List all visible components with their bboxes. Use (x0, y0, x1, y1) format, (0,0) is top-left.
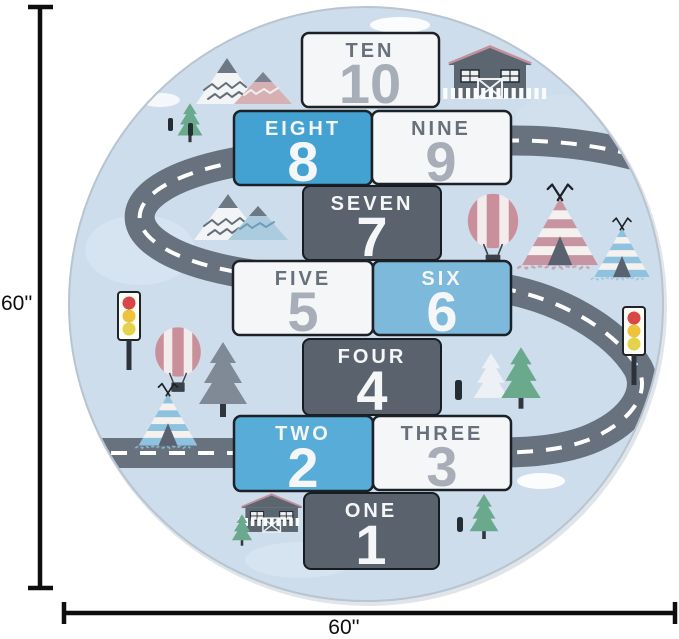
hopscotch-square-nine: NINE 9 (372, 111, 511, 193)
rug-diagram: TEN 10 EIGHT 8 NINE 9 SEVEN 7 FIVE 5 SIX… (0, 0, 679, 639)
square-number: 7 (356, 205, 387, 268)
height-label: 60'' (1, 292, 32, 315)
width-dimension: 60'' (64, 602, 675, 639)
square-number: 9 (425, 130, 456, 193)
height-dimension: 60'' (1, 7, 53, 588)
square-number: 2 (287, 436, 318, 499)
hopscotch-square-four: FOUR 4 (303, 339, 441, 422)
hopscotch-square-two: TWO 2 (234, 416, 373, 499)
hopscotch-square-six: SIX 6 (373, 261, 511, 343)
square-number: 8 (287, 130, 318, 193)
product-image: TEN 10 EIGHT 8 NINE 9 SEVEN 7 FIVE 5 SIX… (0, 0, 679, 639)
hopscotch-square-one: ONE 1 (304, 493, 439, 576)
square-number: 1 (355, 513, 386, 576)
hopscotch-square-three: THREE 3 (373, 416, 511, 498)
hopscotch-square-ten: TEN 10 (302, 33, 439, 115)
width-label: 60'' (328, 616, 359, 639)
square-number: 3 (426, 435, 457, 498)
hopscotch-square-five: FIVE 5 (233, 261, 373, 343)
square-number: 10 (339, 52, 401, 115)
square-number: 5 (287, 280, 318, 343)
hopscotch-square-seven: SEVEN 7 (303, 186, 441, 268)
hopscotch-square-eight: EIGHT 8 (234, 111, 372, 193)
square-number: 6 (426, 280, 457, 343)
square-number: 4 (356, 359, 387, 422)
